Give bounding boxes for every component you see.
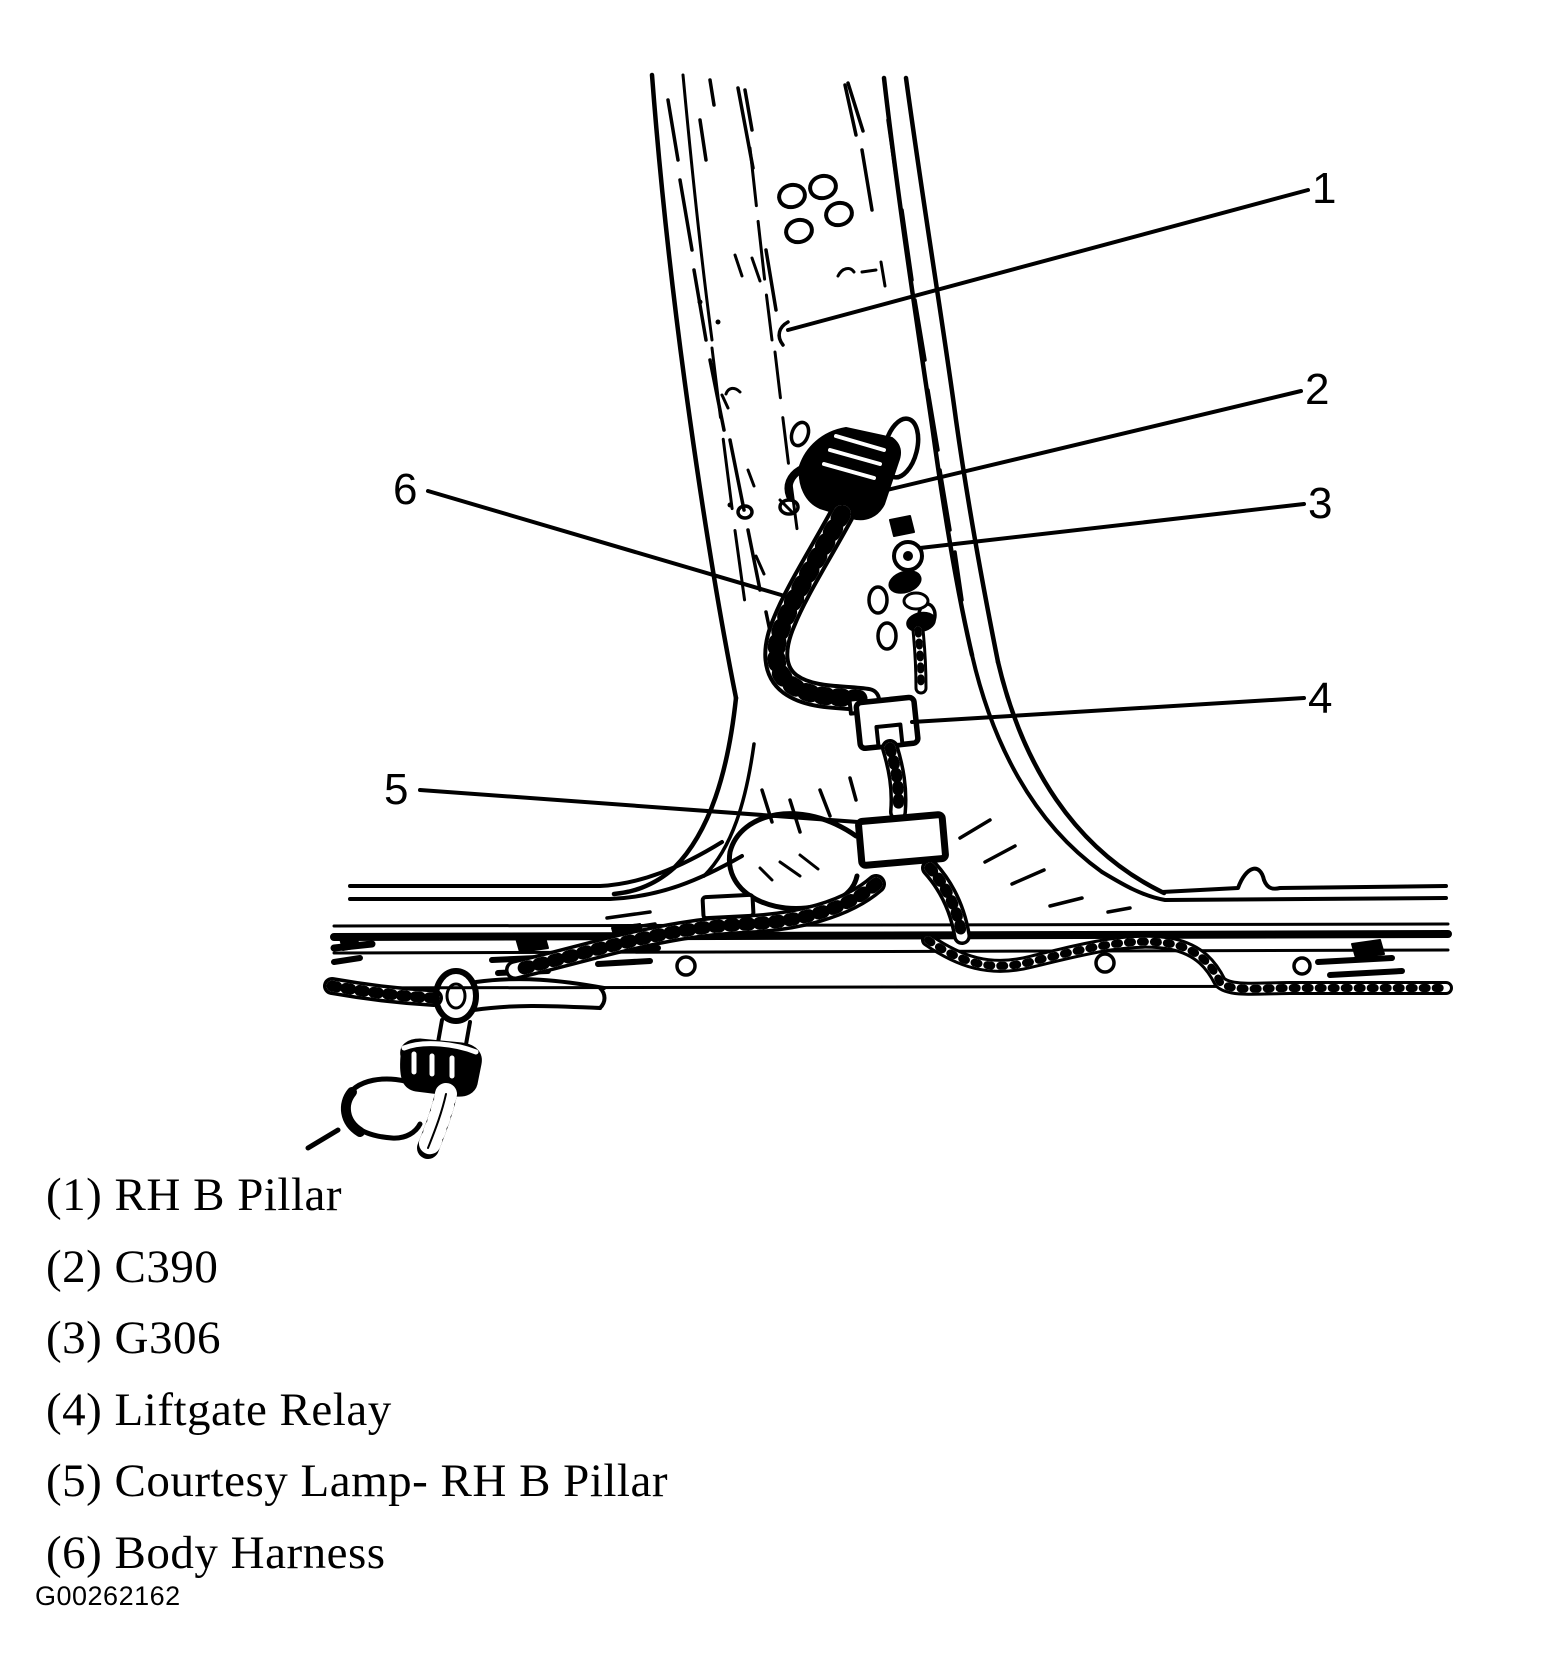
legend-item-3: (3) G306 [46, 1303, 668, 1375]
g306-ground [887, 516, 937, 688]
callout-number-3: 3 [1308, 479, 1332, 528]
callout-number-4: 4 [1308, 674, 1332, 723]
legend-item-4: (4) Liftgate Relay [46, 1375, 668, 1447]
callout-number-5: 5 [384, 765, 408, 814]
relay-to-lamp-lead [890, 748, 899, 812]
figure-code: G00262162 [35, 1581, 181, 1612]
callout-number-6: 6 [393, 465, 417, 514]
legend-item-5: (5) Courtesy Lamp- RH B Pillar [46, 1446, 668, 1518]
service-diagram-page: 1 2 3 4 5 6 (1) RH B Pillar (2) C390 (3)… [0, 0, 1553, 1678]
legend-item-2: (2) C390 [46, 1232, 668, 1304]
harness-clip-tag [703, 895, 754, 919]
leader-4 [912, 698, 1304, 722]
legend-item-1: (1) RH B Pillar [46, 1160, 668, 1232]
legend-item-6: (6) Body Harness [46, 1518, 668, 1590]
callout-number-1: 1 [1312, 164, 1336, 213]
callout-number-2: 2 [1305, 365, 1329, 414]
leader-1 [788, 190, 1308, 330]
legend: (1) RH B Pillar (2) C390 (3) G306 (4) Li… [46, 1160, 668, 1589]
liftgate-relay [849, 693, 918, 749]
leader-3 [920, 504, 1304, 548]
body-harness-conduit [776, 514, 868, 700]
courtesy-lamp [858, 814, 946, 865]
